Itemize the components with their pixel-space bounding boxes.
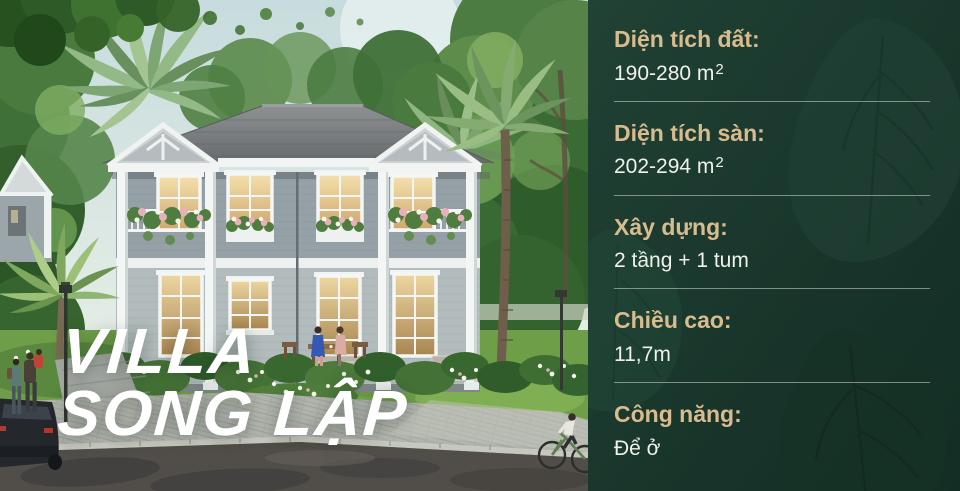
spec-value: 202-294 m2 [614,154,932,179]
superscript: 2 [715,154,723,171]
divider [614,195,930,196]
villa-promo-banner: VILLA SONG LẬP Diện tích đất: 190-280 [0,0,960,491]
spec-value: 190-280 m2 [614,61,932,86]
spec-list: Diện tích đất: 190-280 m2 Diện tích sàn:… [588,0,960,461]
divider [614,288,930,289]
villa-photo: VILLA SONG LẬP [0,0,588,491]
spec-row-floor-area: Diện tích sàn: 202-294 m2 [614,120,932,180]
spec-label: Công năng: [614,401,932,429]
divider [614,382,930,383]
spec-value: 2 tầng + 1 tum [614,248,932,273]
spec-value: Để ở [614,436,932,461]
villa-title-line2: SONG LẬP [56,382,411,444]
spec-label: Xây dựng: [614,214,932,242]
car [0,398,62,470]
superscript: 2 [715,61,723,78]
villa-title: VILLA SONG LẬP [56,320,415,444]
divider [614,101,930,102]
spec-label: Diện tích sàn: [614,120,932,148]
spec-label: Diện tích đất: [614,26,932,54]
villa-title-line1: VILLA [60,320,415,382]
spec-row-land-area: Diện tích đất: 190-280 m2 [614,26,932,86]
spec-row-construction: Xây dựng: 2 tầng + 1 tum [614,214,932,274]
spec-label: Chiều cao: [614,307,932,335]
spec-row-height: Chiều cao: 11,7m [614,307,932,367]
spec-row-function: Công năng: Để ở [614,401,932,461]
spec-panel: Diện tích đất: 190-280 m2 Diện tích sàn:… [588,0,960,491]
spec-value: 11,7m [614,342,932,367]
